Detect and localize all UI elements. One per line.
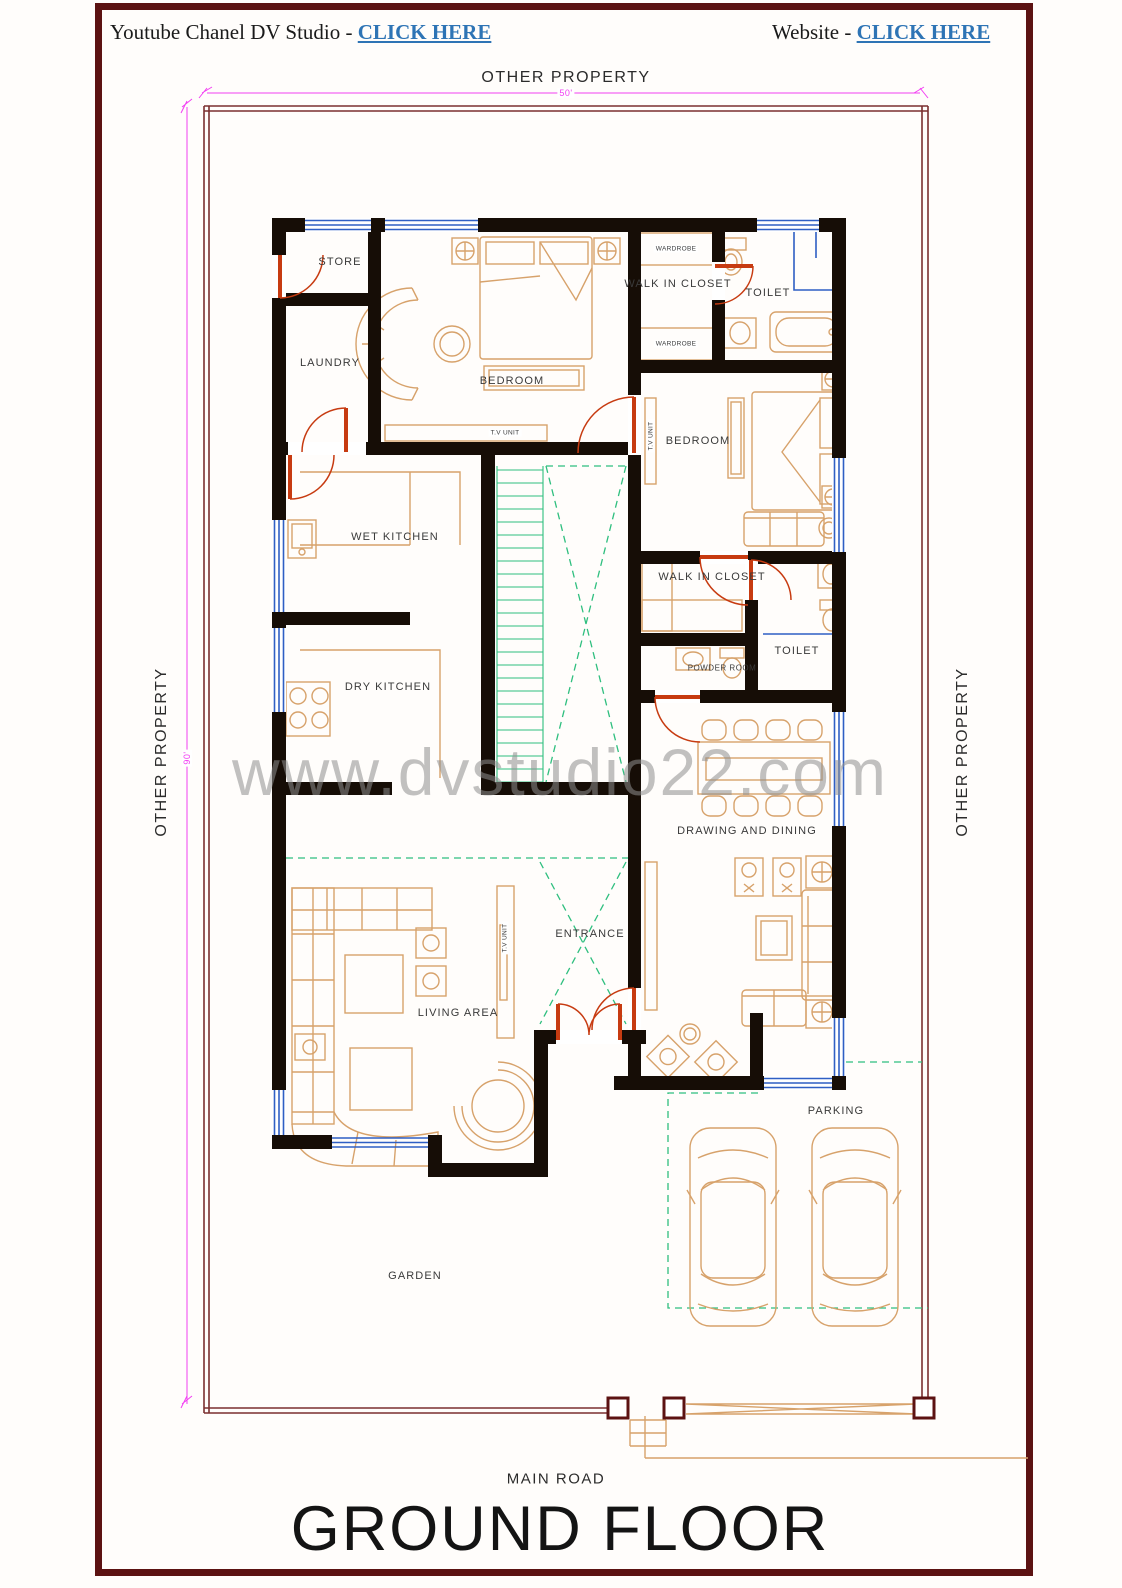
room-label-walk-in-closet2: WALK IN CLOSET	[658, 571, 765, 583]
gate	[608, 1398, 1028, 1458]
room-label-parking: PARKING	[808, 1105, 864, 1117]
room-label-bedroom2: BEDROOM	[666, 435, 731, 447]
car-icon	[687, 1128, 901, 1326]
room-label-toilet1: TOILET	[746, 287, 791, 299]
floor-plan-page: Youtube Chanel DV Studio - CLICK HERE We…	[0, 0, 1122, 1588]
main-road-label: MAIN ROAD	[507, 1471, 606, 1488]
room-label-garden: GARDEN	[388, 1270, 442, 1282]
drawing-sofa-icon	[645, 856, 840, 1083]
room-label-store: STORE	[318, 256, 361, 268]
room-label-living-area: LIVING AREA	[418, 1007, 499, 1019]
tv-unit-label-living: T.V UNIT	[502, 922, 509, 955]
wardrobe-label-2: WARDROBE	[654, 341, 698, 348]
room-label-walk-in-closet1: WALK IN CLOSET	[624, 278, 731, 290]
wardrobe2-icon	[642, 557, 742, 631]
bed-icon	[480, 237, 592, 390]
room-label-drawing-dining: DRAWING AND DINING	[677, 825, 817, 837]
room-label-bedroom1: BEDROOM	[480, 375, 545, 387]
other-property-right-label: OTHER PROPERTY	[954, 667, 972, 836]
void-cross-marks	[286, 466, 928, 1308]
width-dimension-label: 50'	[557, 88, 574, 98]
room-label-toilet2: TOILET	[775, 645, 820, 657]
nightstand-icon	[452, 238, 620, 264]
room-label-laundry: LAUNDRY	[300, 357, 360, 369]
room-label-entrance: ENTRANCE	[555, 928, 624, 940]
bed2-icon	[645, 368, 844, 546]
room-label-wet-kitchen: WET KITCHEN	[351, 531, 439, 543]
other-property-top-label: OTHER PROPERTY	[481, 69, 650, 87]
tv-unit-label-bedroom2: T.V UNIT	[648, 420, 655, 453]
tv-unit-label-bedroom1: T.V UNIT	[489, 430, 522, 437]
room-label-powder-room: POWDER ROOM	[688, 664, 757, 673]
height-dimension-label: 90'	[182, 749, 192, 766]
room-label-dry-kitchen: DRY KITCHEN	[345, 681, 431, 693]
page-title: GROUND FLOOR	[291, 1493, 830, 1565]
wardrobe-label-1: WARDROBE	[654, 246, 698, 253]
other-property-left-label: OTHER PROPERTY	[153, 667, 171, 836]
watermark: www.dvstudio22.com	[232, 734, 888, 810]
